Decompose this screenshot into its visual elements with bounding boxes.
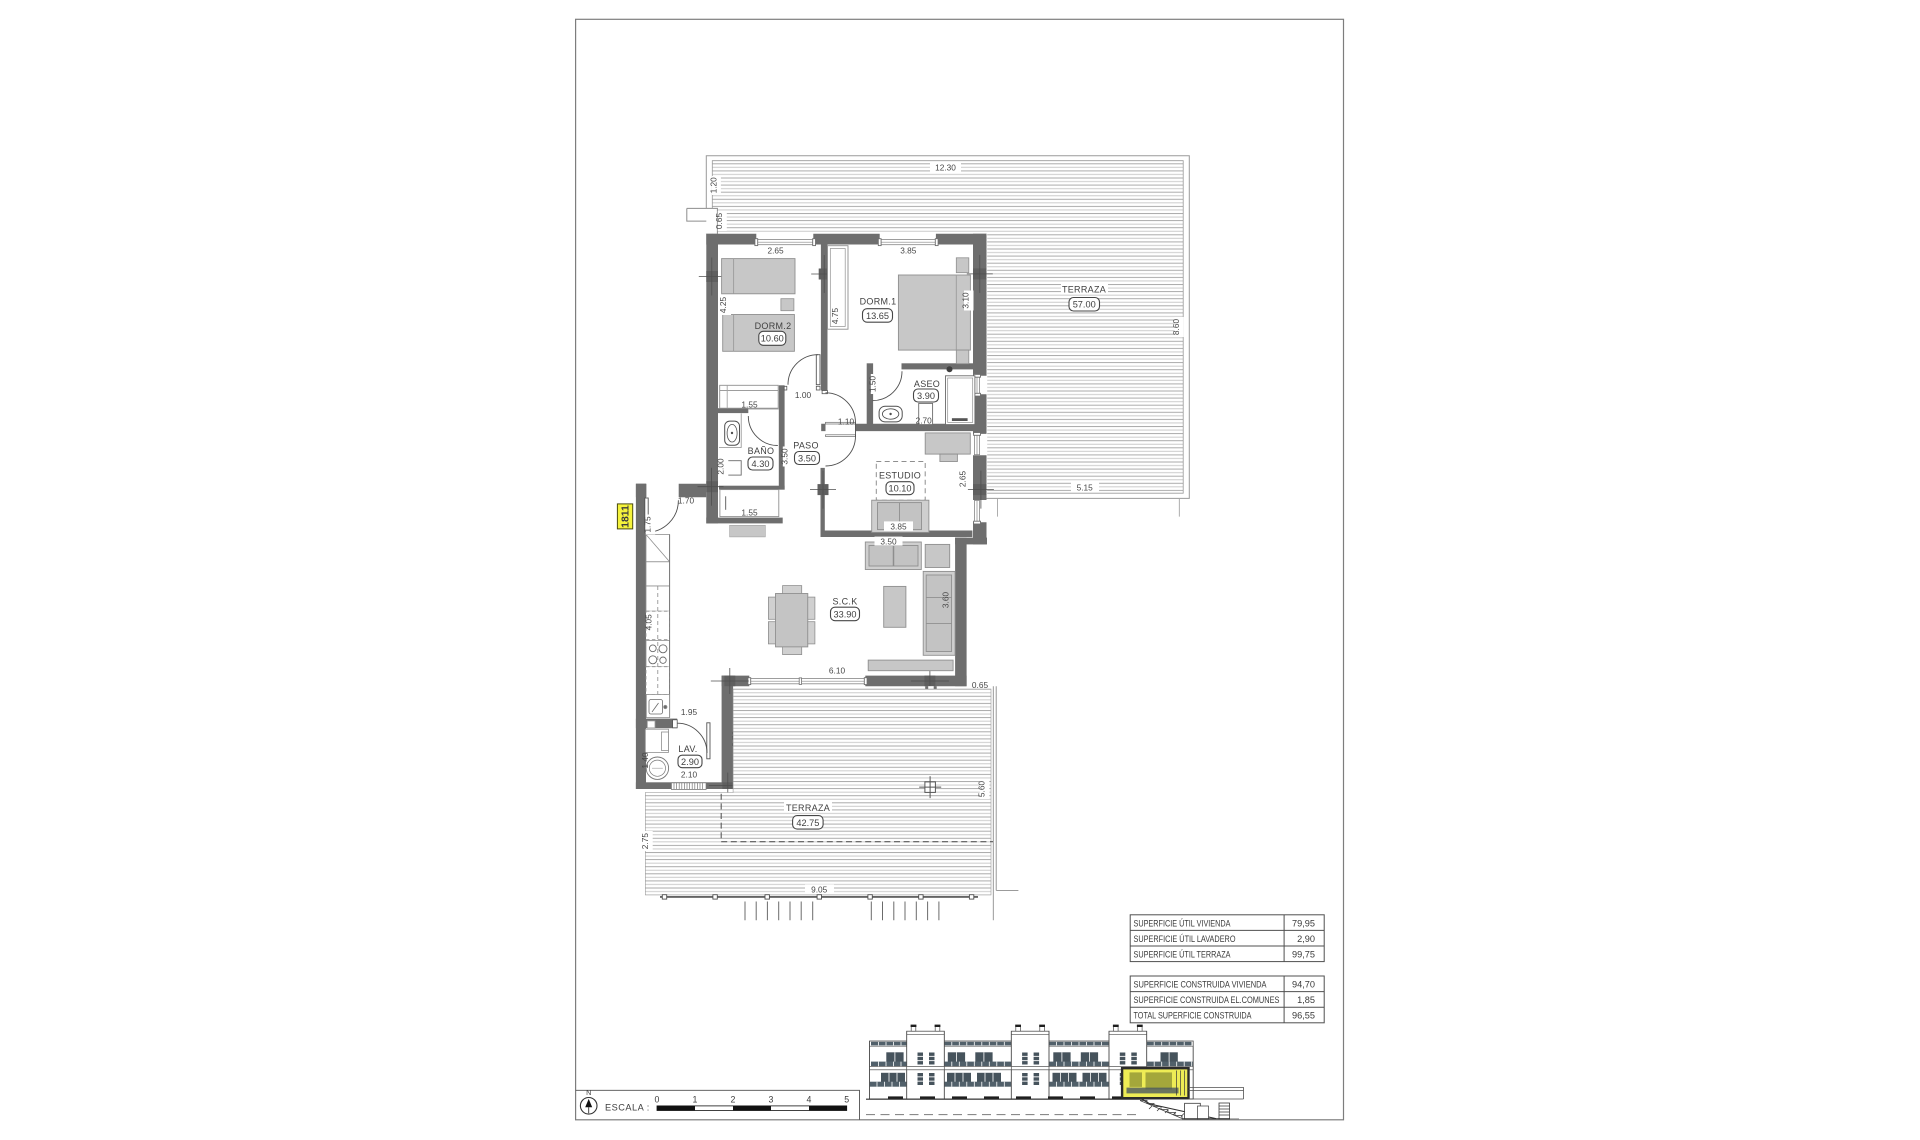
- svg-text:6.10: 6.10: [829, 666, 846, 676]
- svg-text:96,55: 96,55: [1292, 1011, 1315, 1021]
- svg-text:BAÑO: BAÑO: [748, 446, 775, 456]
- svg-text:TOTAL SUPERFICIE CONSTRUIDA: TOTAL SUPERFICIE CONSTRUIDA: [1134, 1011, 1252, 1021]
- svg-text:TERRAZA: TERRAZA: [786, 803, 830, 813]
- svg-text:10.10: 10.10: [889, 484, 912, 494]
- svg-text:0: 0: [655, 1095, 660, 1105]
- svg-text:94,70: 94,70: [1292, 980, 1315, 990]
- svg-text:2.70: 2.70: [916, 416, 933, 426]
- svg-text:2: 2: [731, 1095, 736, 1105]
- svg-text:3.50: 3.50: [798, 453, 816, 463]
- svg-text:SUPERFICIE ÚTIL TERRAZA: SUPERFICIE ÚTIL TERRAZA: [1134, 950, 1231, 960]
- svg-text:TERRAZA: TERRAZA: [1062, 285, 1106, 295]
- svg-text:12.30: 12.30: [935, 163, 956, 173]
- svg-text:SUPERFICIE ÚTIL LAVADERO: SUPERFICIE ÚTIL LAVADERO: [1134, 934, 1236, 944]
- svg-text:SUPERFICIE CONSTRUIDA EL.COMUN: SUPERFICIE CONSTRUIDA EL.COMUNES: [1134, 995, 1280, 1005]
- svg-text:3: 3: [769, 1095, 774, 1105]
- svg-text:3.10: 3.10: [961, 292, 971, 309]
- svg-text:1.10: 1.10: [838, 417, 855, 427]
- svg-text:4.30: 4.30: [752, 459, 770, 469]
- svg-text:4.05: 4.05: [643, 614, 653, 631]
- svg-text:ASEO: ASEO: [914, 379, 940, 389]
- svg-text:1.00: 1.00: [795, 390, 812, 400]
- svg-text:3.60: 3.60: [941, 592, 951, 609]
- svg-text:S.C.K: S.C.K: [832, 597, 857, 607]
- svg-text:1: 1: [693, 1095, 698, 1105]
- svg-text:4: 4: [807, 1095, 812, 1105]
- svg-text:3.50: 3.50: [780, 448, 790, 465]
- svg-text:DORM.2: DORM.2: [755, 321, 792, 331]
- svg-text:2.90: 2.90: [681, 757, 699, 767]
- svg-text:42.75: 42.75: [796, 818, 819, 828]
- svg-text:SUPERFICIE CONSTRUIDA VIVIENDA: SUPERFICIE CONSTRUIDA VIVIENDA: [1134, 980, 1267, 990]
- svg-text:1.75: 1.75: [642, 516, 652, 533]
- svg-text:3.50: 3.50: [880, 536, 897, 546]
- svg-text:4.25: 4.25: [718, 297, 728, 314]
- svg-text:99,75: 99,75: [1292, 950, 1315, 960]
- svg-text:3.85: 3.85: [900, 246, 917, 256]
- svg-text:2.10: 2.10: [681, 770, 698, 780]
- svg-text:2.65: 2.65: [958, 471, 968, 488]
- svg-text:1.55: 1.55: [741, 508, 758, 518]
- svg-text:N: N: [586, 1088, 591, 1097]
- svg-text:1.20: 1.20: [708, 177, 718, 194]
- svg-text:LAV.: LAV.: [678, 744, 697, 754]
- svg-text:1.55: 1.55: [741, 399, 758, 409]
- svg-text:PASO: PASO: [793, 441, 819, 451]
- svg-text:9.05: 9.05: [811, 884, 828, 894]
- svg-text:5.60: 5.60: [977, 781, 987, 798]
- svg-text:33.90: 33.90: [834, 609, 857, 619]
- svg-text:1.50: 1.50: [868, 376, 878, 393]
- svg-text:4.75: 4.75: [830, 308, 840, 325]
- svg-text:8.60: 8.60: [1171, 319, 1181, 336]
- svg-text:2.75: 2.75: [640, 833, 650, 850]
- svg-text:0.65: 0.65: [714, 213, 724, 230]
- svg-text:13.65: 13.65: [866, 311, 889, 321]
- svg-text:79,95: 79,95: [1292, 918, 1315, 928]
- svg-text:1.95: 1.95: [681, 707, 698, 717]
- svg-text:1.40: 1.40: [640, 752, 650, 769]
- svg-text:2.65: 2.65: [768, 246, 785, 256]
- svg-text:5: 5: [844, 1095, 849, 1105]
- svg-text:ESTUDIO: ESTUDIO: [879, 470, 921, 480]
- svg-text:3.90: 3.90: [917, 391, 935, 401]
- svg-text:SUPERFICIE ÚTIL VIVIENDA: SUPERFICIE ÚTIL VIVIENDA: [1134, 918, 1231, 928]
- svg-text:57.00: 57.00: [1073, 300, 1096, 310]
- svg-text:1811: 1811: [620, 505, 632, 528]
- svg-text:1,85: 1,85: [1297, 995, 1315, 1005]
- svg-text:3.85: 3.85: [890, 521, 907, 531]
- svg-text:DORM.1: DORM.1: [860, 297, 897, 307]
- svg-text:ESCALA :: ESCALA :: [605, 1102, 650, 1112]
- svg-text:2.00: 2.00: [716, 458, 726, 475]
- svg-text:10.60: 10.60: [761, 334, 784, 344]
- svg-text:2,90: 2,90: [1297, 934, 1315, 944]
- svg-text:1.70: 1.70: [678, 496, 695, 506]
- svg-text:5.15: 5.15: [1077, 483, 1094, 493]
